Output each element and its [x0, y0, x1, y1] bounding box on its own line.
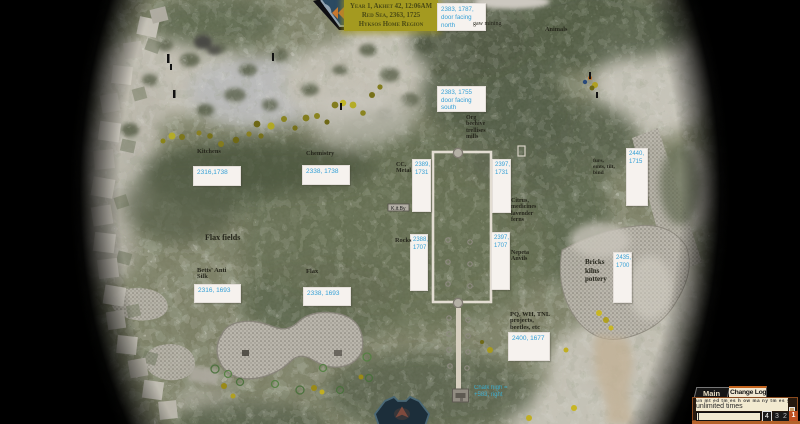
svg-text:K.it.By: K.it.By [391, 206, 406, 212]
